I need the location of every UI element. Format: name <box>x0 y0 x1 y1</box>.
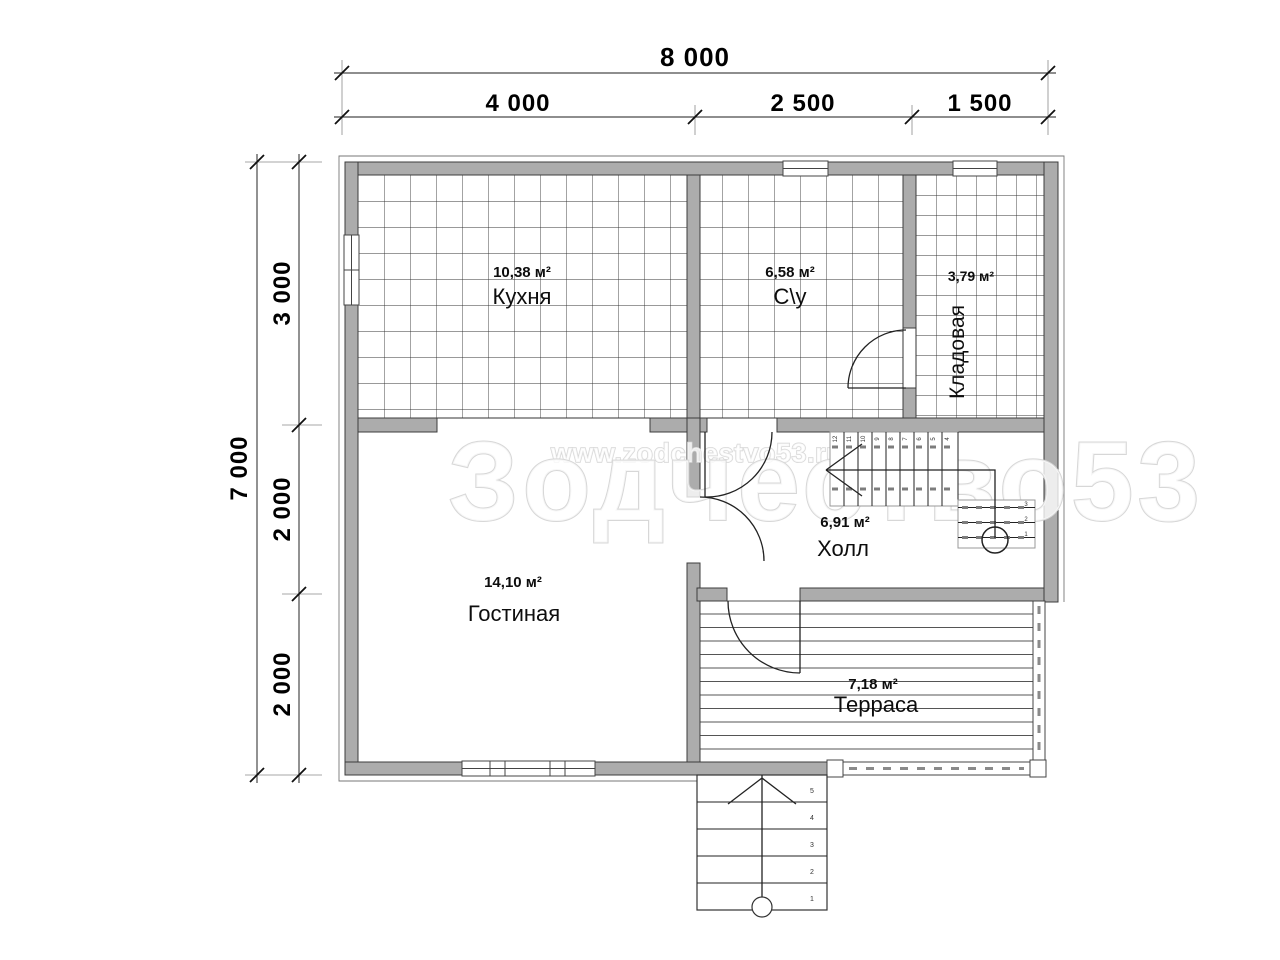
wall-mid-left <box>358 418 437 432</box>
storage-name-label: Кладовая <box>946 305 969 399</box>
tread-number: 11 <box>847 435 853 442</box>
storage-tile-grid <box>916 175 1044 418</box>
bath-name-label: С\у <box>774 284 807 309</box>
dim-left-seg-3: 2 000 <box>269 651 296 716</box>
terrace-area-label: 7,18 м² <box>848 676 897 693</box>
step-number: 1 <box>810 896 814 903</box>
wall-hall-terrace-right <box>800 588 1044 601</box>
step-number: 2 <box>810 869 814 876</box>
wall-bottom-mid <box>595 762 827 775</box>
wall-bath-storage-upper <box>903 175 916 328</box>
storage-area-label: 3,79 м² <box>948 268 994 284</box>
dim-top-seg-3: 1 500 <box>947 90 1012 117</box>
step-number: 3 <box>810 842 814 849</box>
living-area-label: 14,10 м² <box>484 574 542 591</box>
wall-top <box>345 162 1058 175</box>
terrace-name-label: Терраса <box>834 692 919 717</box>
tread-number: 10 <box>861 435 867 442</box>
step-number: 5 <box>810 788 814 795</box>
floor-plan-page: www.zodchestvo53.ru Зодчество53 12 11 10… <box>0 0 1280 960</box>
kitchen-bath-tile-grid <box>358 175 903 418</box>
wall-hall-terrace-left <box>697 588 727 601</box>
dim-top-seg-2: 2 500 <box>770 90 835 117</box>
wall-left-upper <box>345 162 358 235</box>
dim-left-seg-1: 3 000 <box>269 260 296 325</box>
wall-kitchen-bath <box>687 175 700 418</box>
entrance-newel-circle <box>752 897 772 917</box>
living-name-label: Гостиная <box>468 601 560 626</box>
dim-top-total: 8 000 <box>660 42 730 72</box>
hall-name-label: Холл <box>817 536 869 561</box>
step-number: 4 <box>810 815 814 822</box>
dim-left-total: 7 000 <box>226 435 253 500</box>
entrance-steps: 5 4 3 2 1 <box>697 775 827 917</box>
kitchen-name-label: Кухня <box>493 284 552 309</box>
kitchen-area-label: 10,38 м² <box>493 264 551 281</box>
floor-plan-drawing: www.zodchestvo53.ru Зодчество53 12 11 10… <box>0 0 1280 960</box>
tread-number: 12 <box>833 435 839 442</box>
dim-top-seg-1: 4 000 <box>485 90 550 117</box>
bath-area-label: 6,58 м² <box>765 264 814 281</box>
wall-bottom-left <box>345 762 462 775</box>
wall-left-lower <box>345 305 358 775</box>
dim-left-seg-2: 2 000 <box>269 476 296 541</box>
railing-post-left <box>827 760 843 777</box>
wall-bath-storage-lower <box>903 388 916 418</box>
railing-post-right <box>1030 760 1046 777</box>
hall-area-label: 6,91 м² <box>820 514 869 531</box>
